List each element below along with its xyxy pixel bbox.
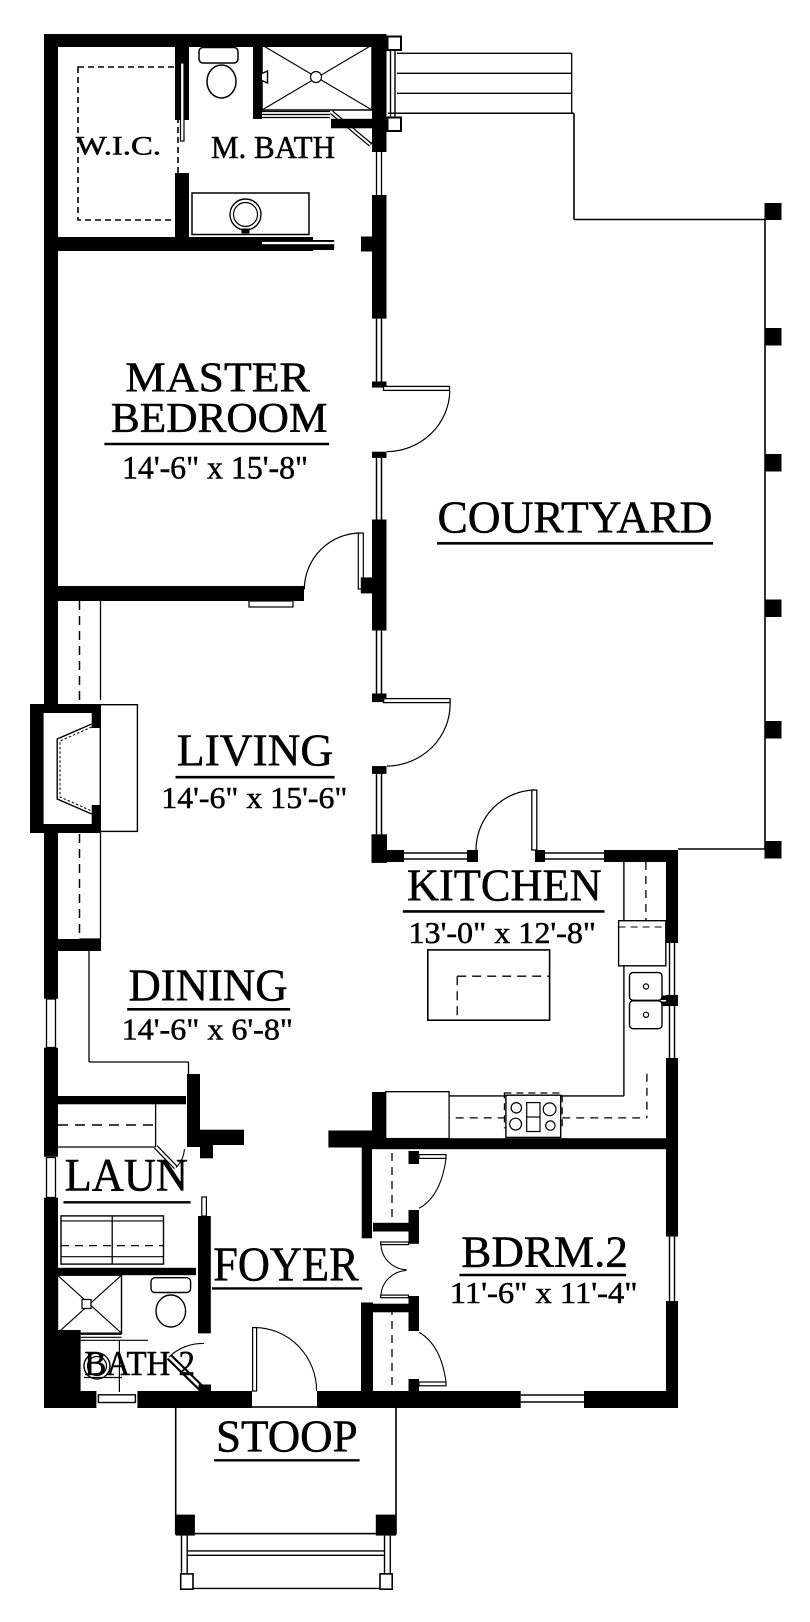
svg-text:KITCHEN: KITCHEN [407, 861, 602, 911]
svg-text:14'-6" x 6'-8": 14'-6" x 6'-8" [122, 1012, 293, 1047]
svg-text:W.I.C.: W.I.C. [76, 132, 161, 161]
svg-text:14'-6" x 15'-6": 14'-6" x 15'-6" [161, 780, 347, 815]
svg-text:11'-6" x 11'-4": 11'-6" x 11'-4" [450, 1275, 638, 1310]
svg-text:FOYER: FOYER [213, 1237, 359, 1292]
svg-text:LAUN: LAUN [65, 1150, 188, 1202]
svg-text:BDRM.2: BDRM.2 [461, 1227, 628, 1276]
svg-text:M. BATH: M. BATH [211, 129, 335, 165]
svg-text:MASTER: MASTER [125, 356, 310, 402]
svg-text:14'-6" x 15'-8": 14'-6" x 15'-8" [122, 450, 308, 486]
svg-text:DINING: DINING [129, 960, 288, 1010]
svg-text:LIVING: LIVING [177, 725, 333, 775]
svg-text:STOOP: STOOP [216, 1410, 358, 1461]
svg-text:BEDROOM: BEDROOM [111, 396, 328, 442]
svg-text:COURTYARD: COURTYARD [438, 493, 713, 543]
svg-text:13'-0" x 12'-8": 13'-0" x 12'-8" [409, 915, 597, 950]
svg-text:BATH 2: BATH 2 [84, 1344, 195, 1383]
